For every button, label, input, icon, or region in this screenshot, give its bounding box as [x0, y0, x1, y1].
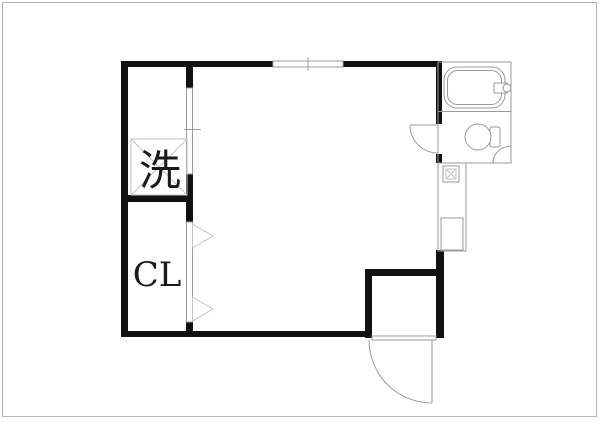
wall-bath-left-upper — [436, 61, 442, 124]
wall-column-top — [186, 61, 193, 88]
wall-bath-left-stub — [436, 154, 442, 163]
wall-entry-nook-top — [365, 269, 444, 276]
washing-machine-space: 洗 — [131, 139, 187, 195]
wall-entry-nook-left — [365, 269, 372, 338]
wall-top-right — [343, 61, 442, 67]
toilet-bowl — [465, 124, 491, 150]
wall-right-lower — [436, 250, 444, 338]
bath-faucet-knob — [503, 84, 511, 92]
wall-top-left — [121, 61, 273, 67]
wall-laundry-closet-divider — [121, 195, 193, 202]
entrance-threshold — [372, 336, 436, 340]
laundry-label: 洗 — [139, 146, 181, 195]
floor-plan-svg: 洗 CL — [0, 0, 600, 424]
closet-door-frame — [187, 222, 193, 322]
closet-label: CL — [133, 255, 182, 295]
wall-bottom — [121, 331, 368, 337]
wall-column-bottom — [186, 322, 193, 337]
floor-plan-canvas: 洗 CL — [0, 0, 600, 424]
